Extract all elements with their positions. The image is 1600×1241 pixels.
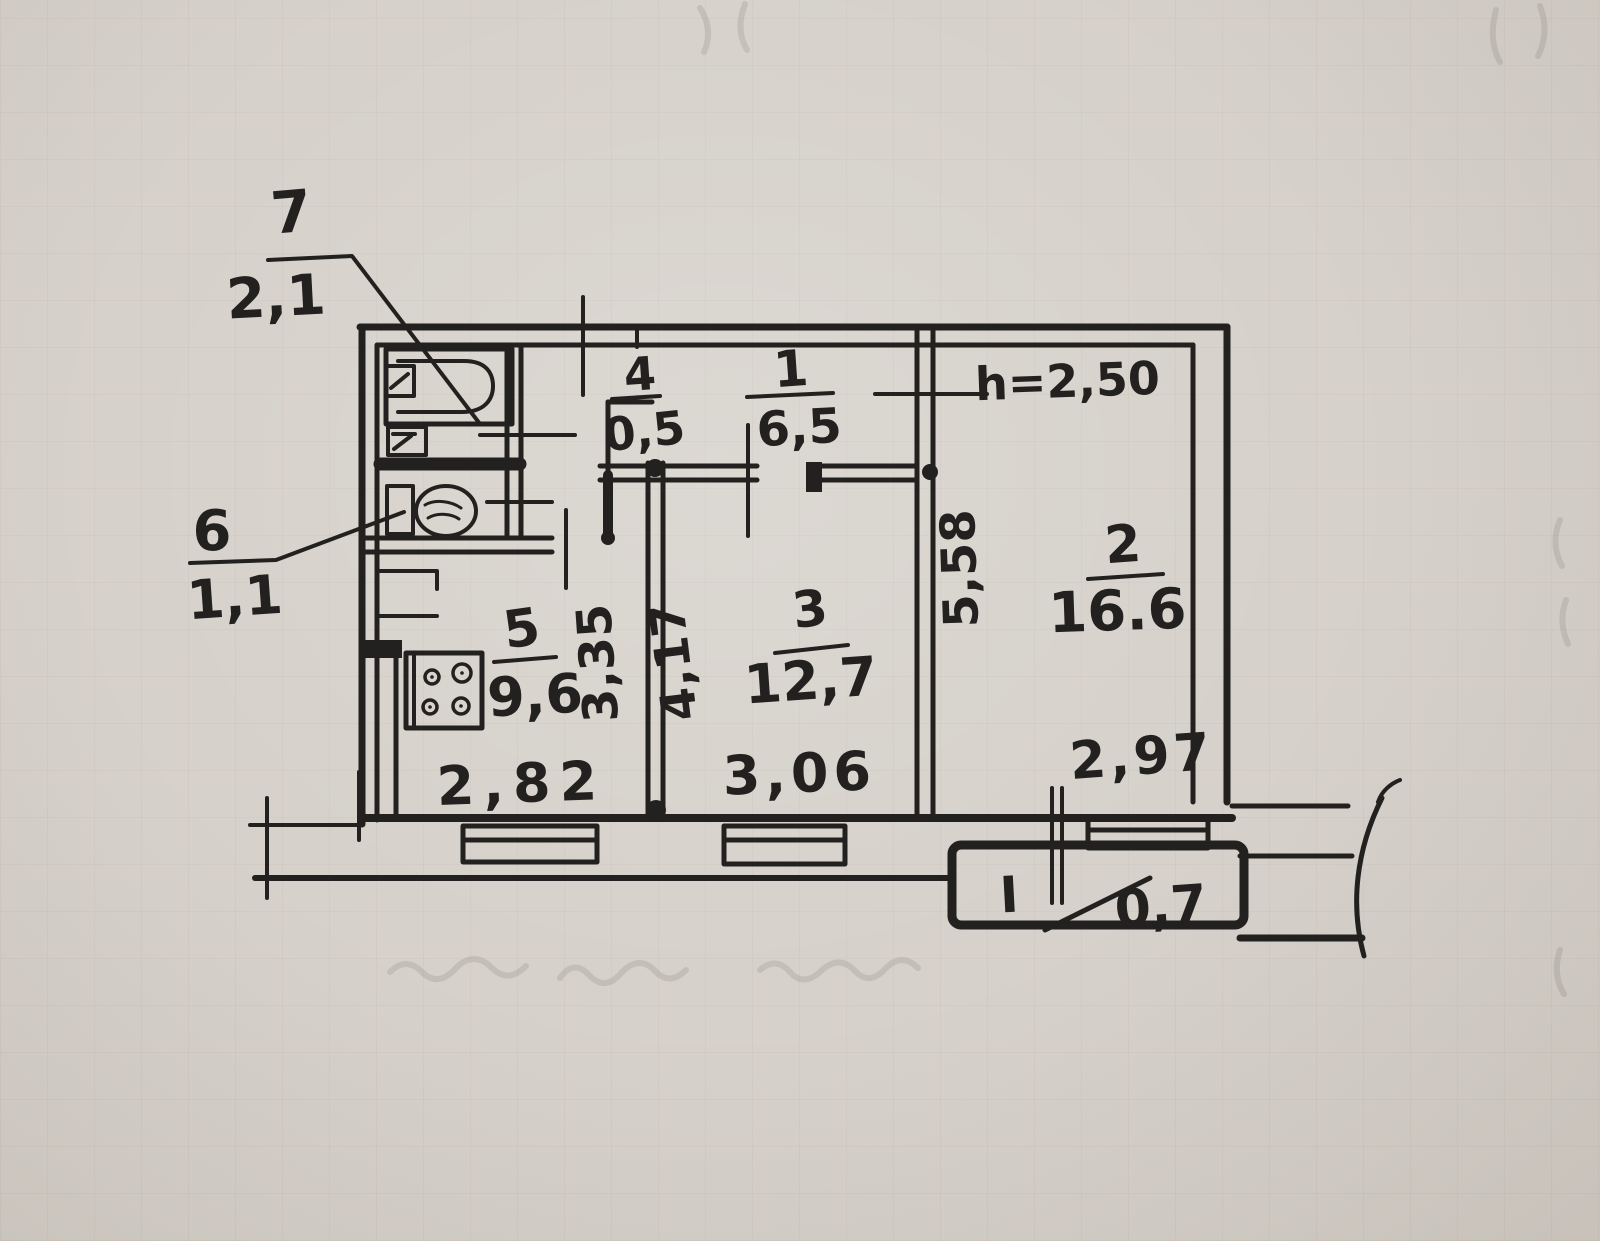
room7-number: 7 (268, 176, 314, 247)
room3-width-dim: 3,06 (722, 739, 877, 807)
room6-area: 1,1 (185, 563, 285, 633)
stove-icon (406, 653, 482, 728)
balcony-number: I (998, 866, 1020, 925)
room6-number: 6 (193, 499, 232, 564)
toilet-icon (387, 486, 476, 536)
room3-area: 12,7 (742, 644, 879, 716)
floor-plan-drawing: 7 2,1 6 1,1 4 0,5 1 6,5 h=2,50 2 16.6 3 … (0, 0, 1600, 1241)
room2-number: 2 (1103, 514, 1143, 576)
paper-sheet: 7 2,1 6 1,1 4 0,5 1 6,5 h=2,50 2 16.6 3 … (0, 0, 1600, 1241)
kitchen-cupboard-icon (379, 571, 437, 616)
bathroom-sink-icon (388, 427, 426, 455)
kitchen-depth-dim: 3,35 (566, 602, 630, 724)
room5-number: 5 (500, 597, 544, 661)
kitchen-width-dim: 2,82 (436, 749, 607, 818)
room2-area: 16.6 (1047, 577, 1187, 647)
room2-width-dim: 2,97 (1068, 722, 1216, 792)
balcony-area: 0,7 (1113, 874, 1209, 940)
room4-area: 0,5 (601, 400, 688, 462)
kitchen-window (463, 826, 597, 862)
room3-window (724, 826, 845, 864)
room1-fraction-bar (747, 393, 833, 397)
room1-number: 1 (771, 339, 810, 399)
room3-number: 3 (789, 578, 831, 640)
room5-fraction-bar (494, 657, 556, 662)
room4-number: 4 (622, 346, 658, 402)
room2-depth-dim: 5,58 (930, 508, 990, 628)
room1-area: 6,5 (755, 398, 843, 458)
ceiling-height-note: h=2,50 (974, 351, 1161, 411)
room7-area: 2,1 (225, 262, 327, 332)
